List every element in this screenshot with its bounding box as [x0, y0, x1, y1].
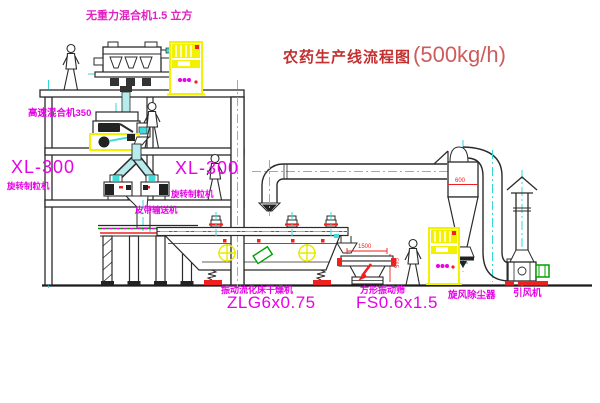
gravity-mixer-label: 无重力混合机1.5 立方 — [86, 11, 192, 22]
high-speed-mixer-label: 高速混合机350 — [28, 109, 91, 119]
granulator-right-model-label: XL-300 — [175, 159, 239, 177]
granulator-right-name-label: 旋转制粒机 — [171, 190, 214, 199]
fan-suction-duct — [483, 150, 511, 284]
screen-height-dimension: 565 — [392, 258, 398, 269]
cyclone-diameter-dimension: 600 — [455, 178, 466, 184]
title-capacity: (500kg/h) — [413, 44, 506, 66]
granulator-left-model-label: XL-300 — [11, 158, 75, 176]
exhaust-duct — [252, 151, 462, 216]
fan-label: 引风机 — [513, 289, 542, 299]
title-text: 农药生产线流程图 — [283, 50, 411, 65]
diagram-title: 农药生产线流程图 (500kg/h) — [283, 44, 506, 66]
fan-motor-icon — [536, 265, 549, 277]
gravity-mixer-machine — [88, 42, 174, 113]
belt-conveyor-label: 皮带输送机 — [135, 206, 178, 215]
induced-draft-fan-machine — [505, 262, 549, 286]
alarm-light-icon — [195, 45, 199, 49]
control-cabinet-top — [167, 42, 205, 95]
person-figure — [63, 45, 79, 91]
cyclone-label: 旋风除尘器 — [448, 291, 496, 301]
screen-model-label: FS0.6x1.5 — [356, 294, 438, 311]
control-cabinet-ground — [426, 228, 462, 284]
granulator-left-name-label: 旋转制粒机 — [7, 182, 50, 191]
person-figure — [405, 240, 421, 286]
cad-flow-diagram: 1500 565 600 无重力混合机1.5 立方 农药生产线流程图 (500k… — [0, 0, 600, 403]
dryer-model-label: ZLG6x0.75 — [227, 294, 316, 311]
alarm-light-icon — [452, 231, 456, 235]
screen-length-dimension: 1500 — [358, 244, 372, 250]
